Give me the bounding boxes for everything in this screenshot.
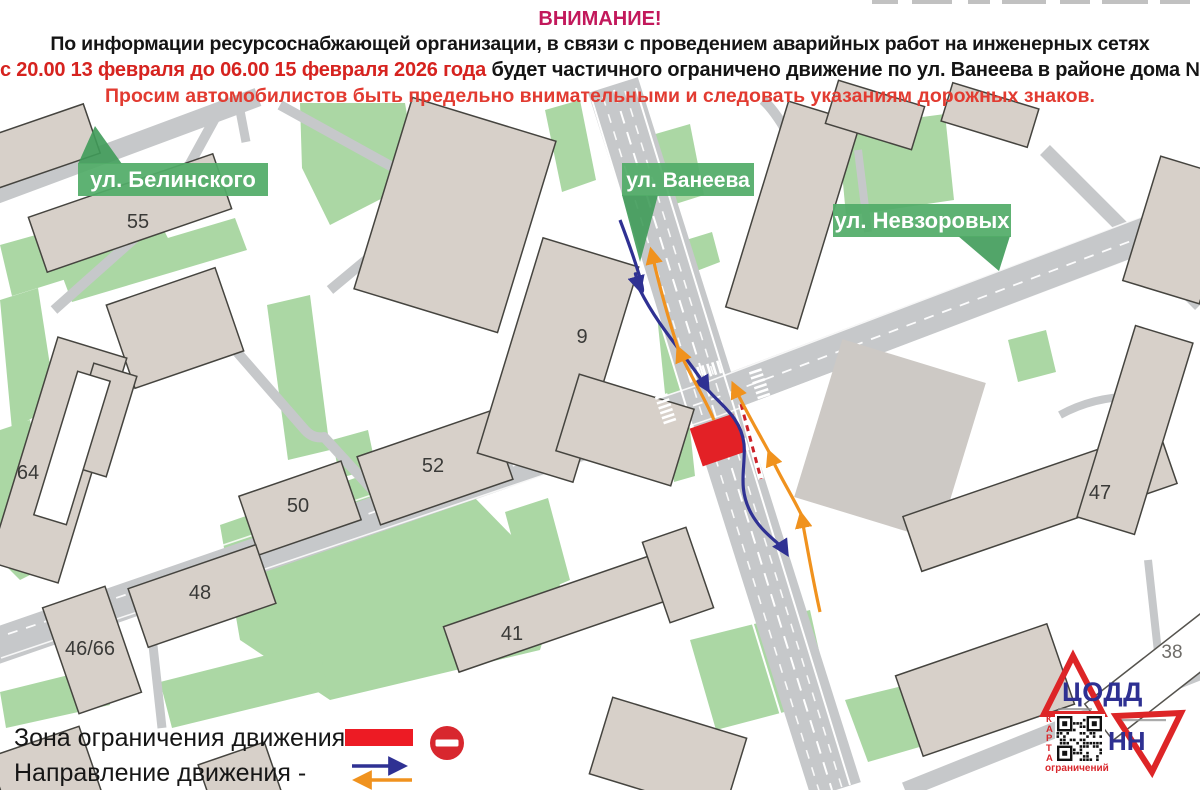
logo-nn-text: НН [1108,726,1146,756]
logo-codd-text: ЦОДД [1062,677,1143,707]
header-info-line: По информации ресурсоснабжающей организа… [0,33,1200,56]
building-number-50: 50 [287,495,309,517]
legend-direction-label: Направление движения - [14,759,306,787]
codd-logo: 38 ЦОДД НН [1044,612,1200,772]
street-label-belinskogo-text: ул. Белинского [90,167,256,192]
legend-zone-label: Зона ограничения движения - [14,724,360,752]
no-entry-icon [430,726,464,760]
building-number-46-66: 46/66 [65,638,115,660]
street-label-nevzorovykh-text: ул. Невзоровых [834,208,1010,233]
building-number-41: 41 [501,623,523,645]
building-number-64: 64 [17,462,39,484]
building-number-47: 47 [1089,482,1111,504]
header-dates: с 20.00 13 февраля до 06.00 15 февраля 2… [0,59,486,81]
building-number-48: 48 [189,582,211,604]
logo-restrictions-text: ограничений [1045,763,1109,774]
legend-zone-swatch [345,729,413,746]
header-warning-line: Просим автомобилистов быть предельно вни… [0,85,1200,108]
street-label-nevzorovykh: ул. Невзоровых [833,204,1011,271]
building-number-52: 52 [422,455,444,477]
street-label-vaneeva-text: ул. Ванеева [626,169,750,192]
header-title: ВНИМАНИЕ! [0,8,1200,31]
building-number-38: 38 [1161,642,1182,663]
map-canvas: 55 9 64 52 50 48 46/66 41 47 [0,0,1200,790]
building-number-9: 9 [576,326,587,348]
building-number-55: 55 [127,211,149,233]
header-dates-line: с 20.00 13 февраля до 06.00 15 февраля 2… [0,59,1200,82]
logo-karta-text: КАРТА [1046,715,1056,763]
header: ВНИМАНИЕ! По информации ресурсоснабжающе… [0,0,1200,108]
traffic-restriction-poster: ВНИМАНИЕ! По информации ресурсоснабжающе… [0,0,1200,790]
header-dates-rest: будет частичного ограничено движение по … [486,59,1200,81]
qr-code [1055,714,1105,764]
